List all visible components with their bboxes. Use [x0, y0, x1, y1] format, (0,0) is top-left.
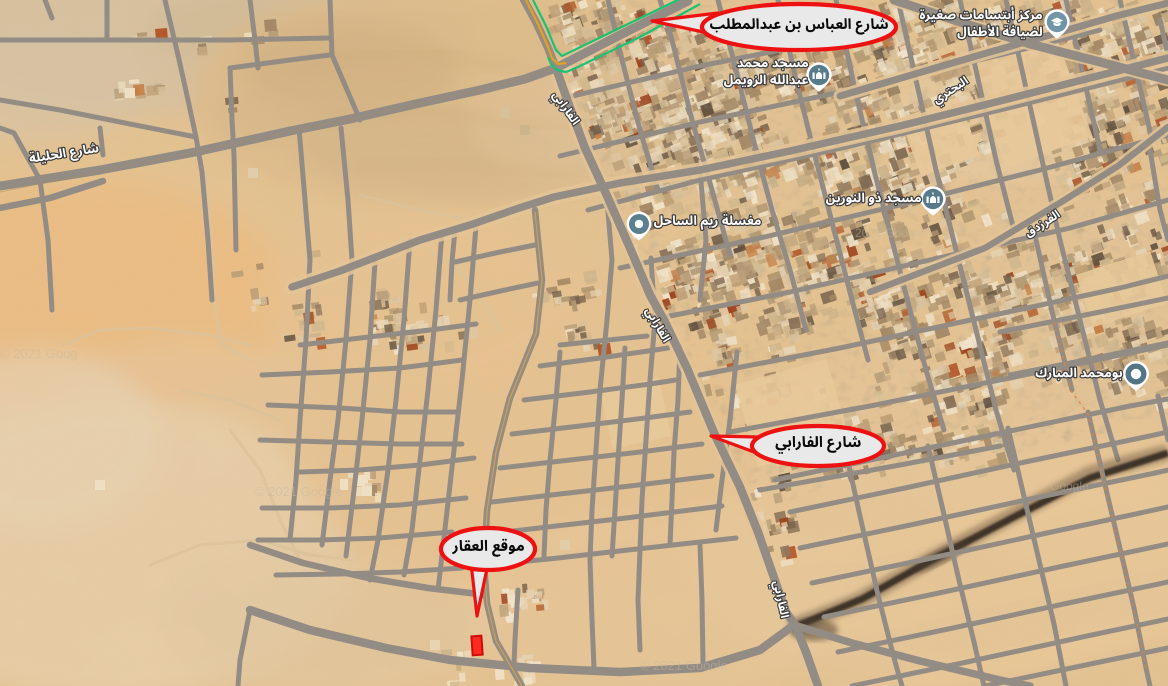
- svg-text:© 2021 Google: © 2021 Google: [255, 484, 343, 499]
- svg-text:2021 Google: 2021 Google: [855, 226, 924, 240]
- svg-text:© 2021 Goog: © 2021 Goog: [0, 346, 78, 361]
- svg-text:© 2021 Google: © 2021 Google: [640, 658, 728, 673]
- svg-text:Google: Google: [1050, 479, 1089, 493]
